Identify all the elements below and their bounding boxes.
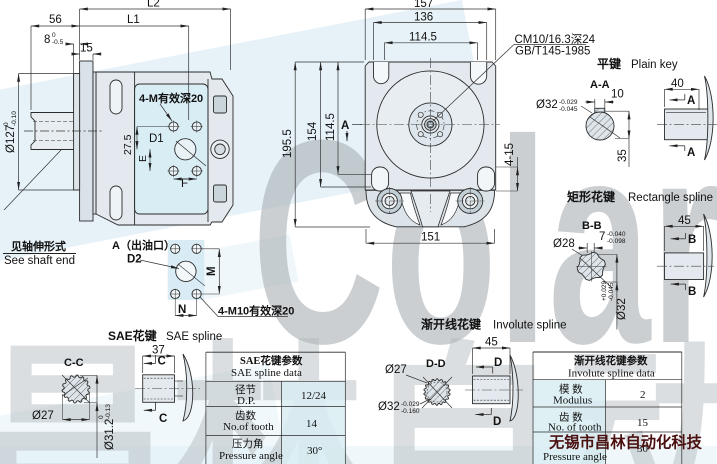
svg-text:-0.160: -0.160 xyxy=(401,408,420,415)
svg-text:8: 8 xyxy=(44,34,50,46)
svg-text:Ø127: Ø127 xyxy=(5,125,17,153)
svg-text:-0.098: -0.098 xyxy=(607,238,626,245)
svg-text:56: 56 xyxy=(49,14,62,26)
svg-text:15: 15 xyxy=(80,43,93,55)
svg-text:GB/T145-1985: GB/T145-1985 xyxy=(515,46,590,58)
svg-text:30°: 30° xyxy=(307,445,322,457)
svg-text:154: 154 xyxy=(307,121,319,141)
svg-text:-0.029: -0.029 xyxy=(401,401,420,408)
svg-text:-0.10: -0.10 xyxy=(11,111,18,126)
svg-text:14: 14 xyxy=(306,418,318,430)
svg-text:40: 40 xyxy=(671,78,684,90)
svg-text:A（出油口）: A（出油口） xyxy=(112,238,175,252)
svg-text:-0.045: -0.045 xyxy=(608,282,615,301)
svg-text:Ø32: Ø32 xyxy=(536,99,558,111)
svg-text:-0.040: -0.040 xyxy=(607,231,626,238)
svg-text:SAE spline: SAE spline xyxy=(166,331,222,343)
svg-text:+0.029: +0.029 xyxy=(601,281,608,301)
svg-text:Involute spline: Involute spline xyxy=(493,320,567,332)
svg-text:See shaft end: See shaft end xyxy=(4,255,75,267)
svg-text:D2: D2 xyxy=(127,254,142,266)
svg-text:SAE花键参数: SAE花键参数 xyxy=(240,354,303,367)
svg-text:B: B xyxy=(688,286,696,298)
svg-text:Modulus: Modulus xyxy=(553,395,592,407)
svg-text:No. of tooth: No. of tooth xyxy=(548,422,602,434)
svg-text:渐开线花键参数: 渐开线花键参数 xyxy=(574,354,648,367)
svg-text:见轴伸形式: 见轴伸形式 xyxy=(11,239,66,253)
svg-text:4-M10有效深20: 4-M10有效深20 xyxy=(218,304,294,318)
svg-text:D: D xyxy=(494,357,502,369)
svg-text:Ø27: Ø27 xyxy=(32,410,54,422)
svg-text:136: 136 xyxy=(414,12,433,24)
svg-text:4-M有效深20: 4-M有效深20 xyxy=(139,91,203,105)
svg-text:-0.5: -0.5 xyxy=(52,39,64,46)
svg-text:157: 157 xyxy=(414,0,433,10)
svg-text:114.5: 114.5 xyxy=(325,113,337,141)
svg-text:195.5: 195.5 xyxy=(282,129,294,158)
svg-text:A: A xyxy=(687,147,695,159)
svg-text:Plain key: Plain key xyxy=(631,59,678,71)
svg-text:45: 45 xyxy=(485,337,498,349)
svg-text:No.of tooth: No.of tooth xyxy=(223,421,274,433)
svg-text:4-15: 4-15 xyxy=(504,143,516,166)
svg-text:D: D xyxy=(493,416,501,428)
svg-text:C: C xyxy=(159,413,167,425)
svg-text:Ø31.2: Ø31.2 xyxy=(104,419,116,450)
svg-text:A: A xyxy=(687,95,695,107)
svg-text:7: 7 xyxy=(599,231,605,243)
svg-text:Involute spline data: Involute spline data xyxy=(568,368,655,380)
svg-text:无锡市昌林自动化科技: 无锡市昌林自动化科技 xyxy=(548,434,703,452)
svg-text:15: 15 xyxy=(637,417,649,429)
svg-text:-0.13: -0.13 xyxy=(105,404,112,419)
svg-text:0: 0 xyxy=(98,415,105,419)
svg-text:Ø32: Ø32 xyxy=(378,401,400,413)
svg-text:D-D: D-D xyxy=(426,358,446,370)
svg-text:B: B xyxy=(688,234,696,246)
svg-text:C-C: C-C xyxy=(64,357,84,369)
svg-text:10: 10 xyxy=(611,89,624,101)
svg-text:压力角: 压力角 xyxy=(232,437,264,450)
svg-text:E: E xyxy=(137,155,149,162)
svg-text:114.5: 114.5 xyxy=(409,32,437,44)
svg-text:45: 45 xyxy=(678,215,691,227)
svg-text:N: N xyxy=(178,304,186,316)
svg-text:F: F xyxy=(181,178,188,190)
svg-text:151: 151 xyxy=(421,232,440,244)
svg-text:矩形花键: 矩形花键 xyxy=(566,189,615,204)
svg-text:CM10/16.3深24: CM10/16.3深24 xyxy=(515,32,596,46)
svg-text:SAE spline data: SAE spline data xyxy=(231,367,302,379)
svg-text:D.P.: D.P. xyxy=(237,395,256,407)
svg-text:0: 0 xyxy=(52,32,56,39)
svg-text:0: 0 xyxy=(3,122,10,126)
svg-text:35: 35 xyxy=(617,149,629,162)
svg-text:12/24: 12/24 xyxy=(301,390,327,402)
svg-text:平键: 平键 xyxy=(597,56,621,71)
svg-text:Pressure angle: Pressure angle xyxy=(543,451,607,463)
svg-text:-0.045: -0.045 xyxy=(559,106,578,113)
svg-text:M: M xyxy=(206,266,218,276)
svg-text:2: 2 xyxy=(640,389,646,401)
svg-text:Pressure angle: Pressure angle xyxy=(219,450,283,462)
svg-text:Ø28: Ø28 xyxy=(553,238,575,250)
svg-text:27.5: 27.5 xyxy=(122,134,134,155)
svg-text:A-A: A-A xyxy=(590,79,610,91)
svg-text:L2: L2 xyxy=(147,0,160,10)
svg-text:D1: D1 xyxy=(149,133,164,145)
svg-text:L1: L1 xyxy=(127,14,140,26)
svg-text:渐开线花键: 渐开线花键 xyxy=(421,317,481,332)
svg-text:Ø32: Ø32 xyxy=(616,298,628,320)
svg-text:Ø27: Ø27 xyxy=(385,364,407,376)
svg-text:Rectangle spline: Rectangle spline xyxy=(628,192,713,204)
svg-text:SAE花键: SAE花键 xyxy=(108,328,157,343)
svg-text:C: C xyxy=(158,356,166,368)
svg-text:A: A xyxy=(341,120,349,132)
svg-text:-0.029: -0.029 xyxy=(559,99,578,106)
